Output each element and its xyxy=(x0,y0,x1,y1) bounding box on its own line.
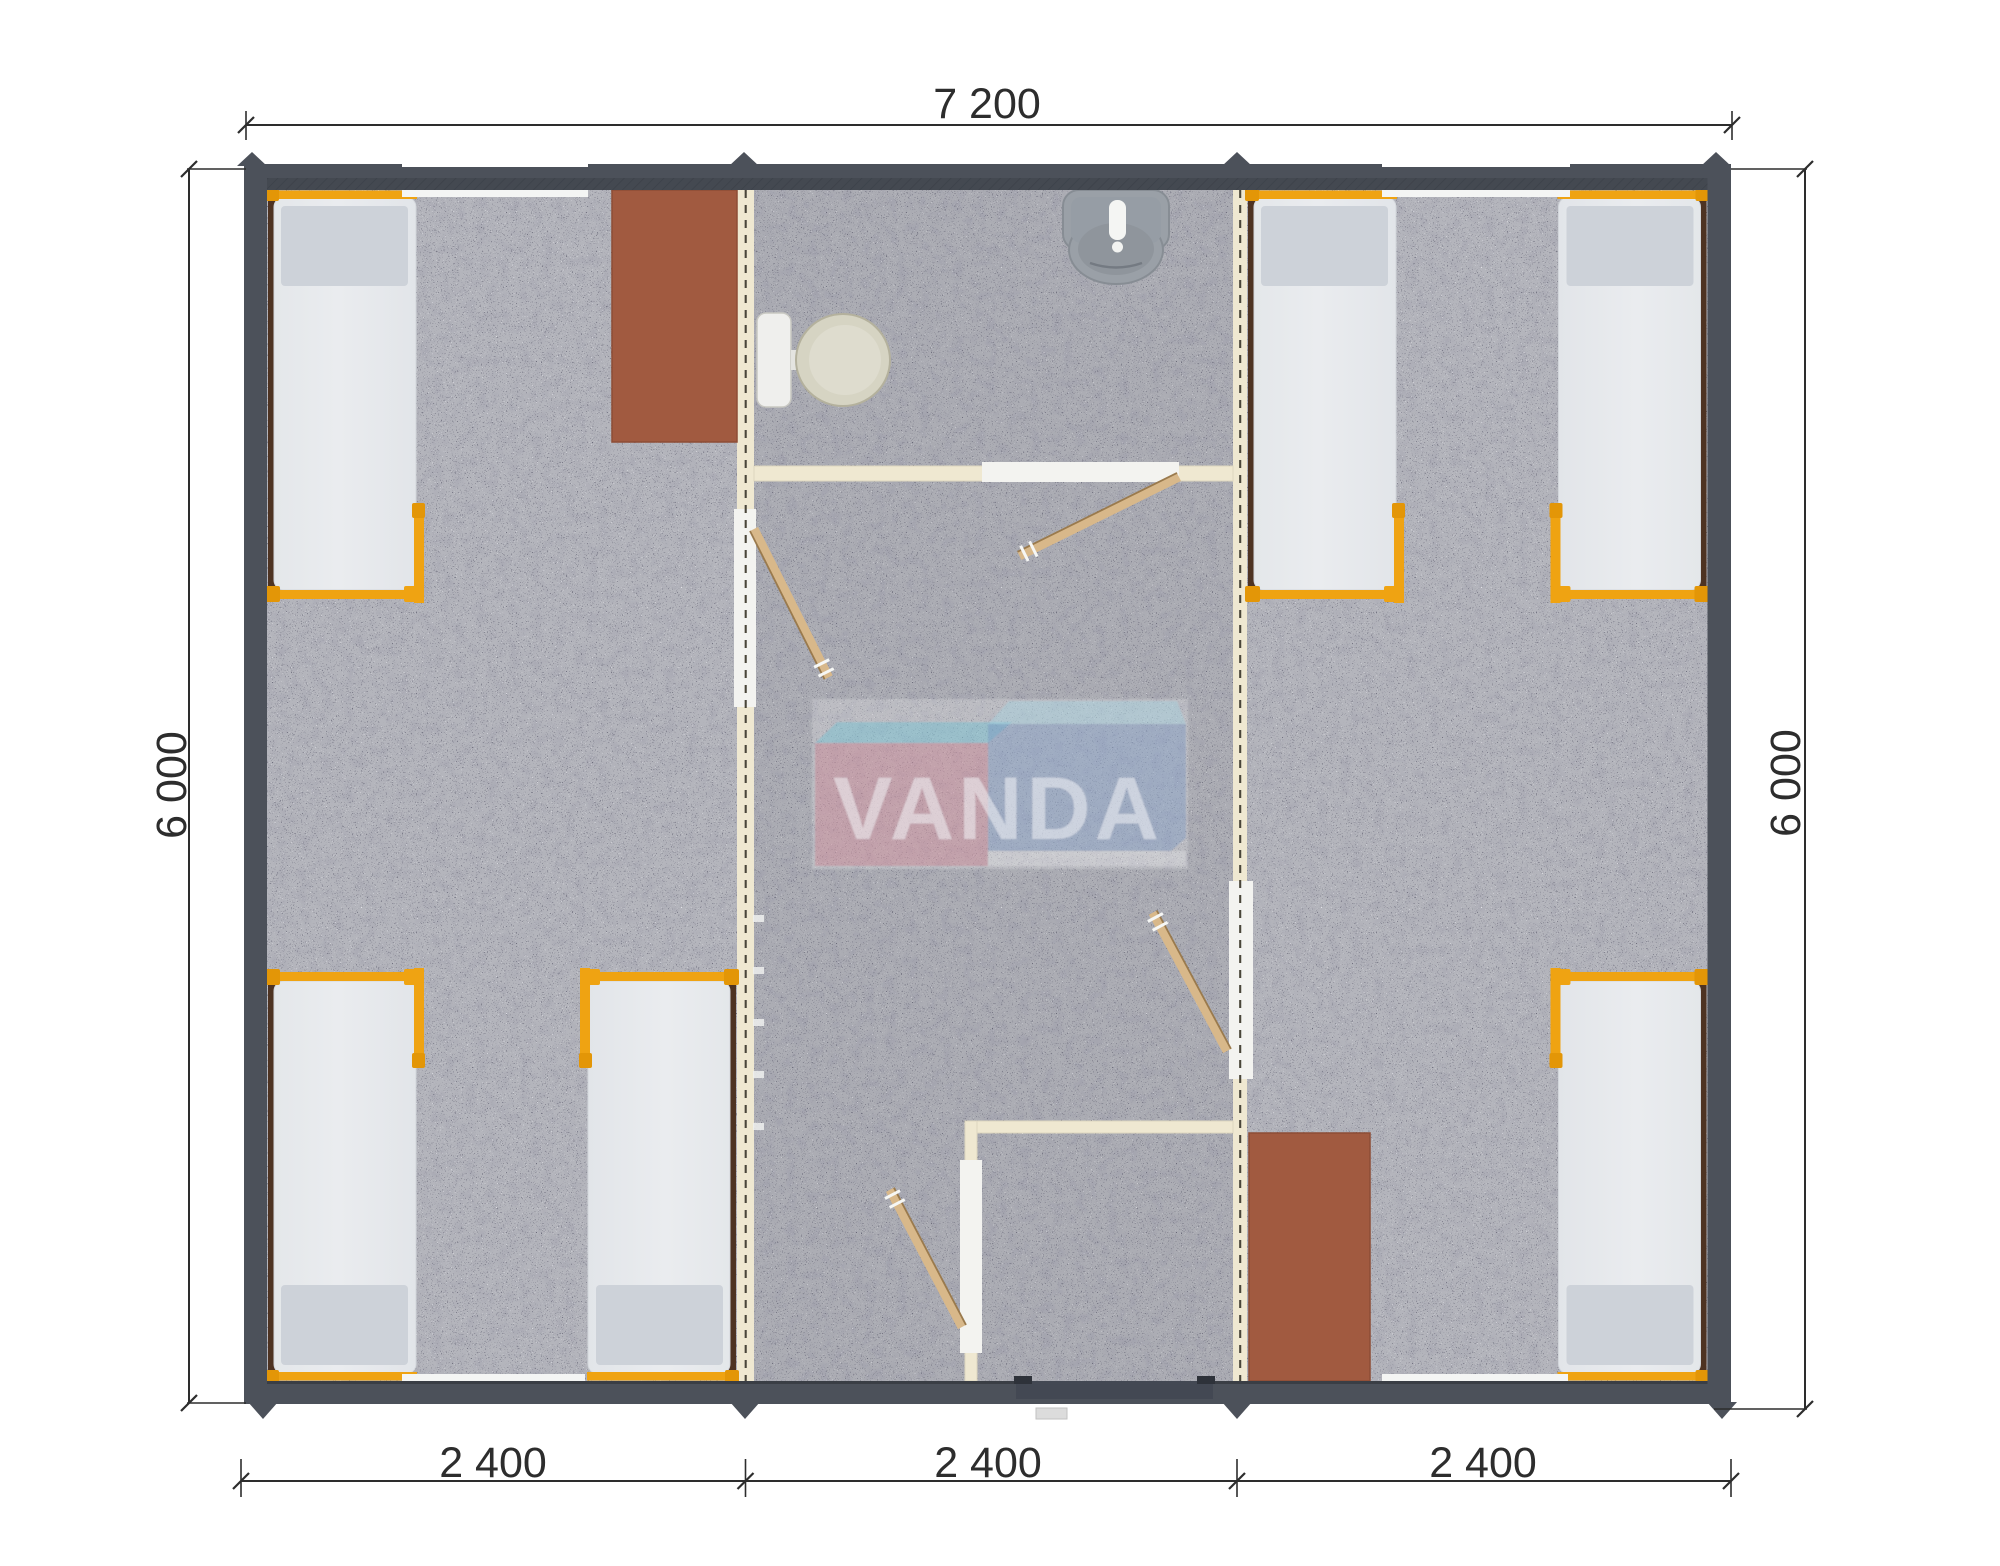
svg-text:VANDA: VANDA xyxy=(833,758,1163,858)
svg-text:2 400: 2 400 xyxy=(934,1439,1042,1487)
svg-text:7 200: 7 200 xyxy=(933,80,1041,128)
svg-text:2 400: 2 400 xyxy=(1429,1439,1537,1487)
svg-text:6 000: 6 000 xyxy=(148,731,196,839)
svg-text:2 400: 2 400 xyxy=(439,1439,547,1487)
svg-text:6 000: 6 000 xyxy=(1762,729,1810,837)
